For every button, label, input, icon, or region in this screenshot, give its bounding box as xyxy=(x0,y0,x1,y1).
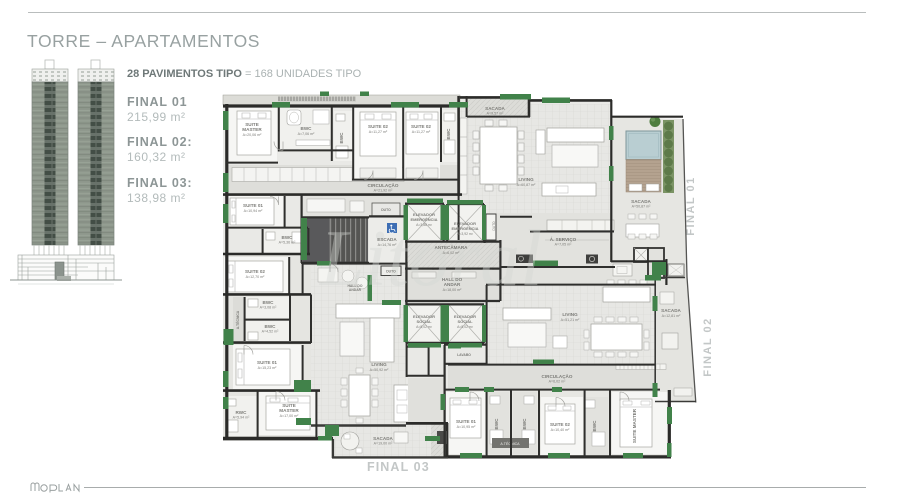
svg-text:A=5,94 m²: A=5,94 m² xyxy=(233,416,250,420)
svg-text:A=6,02 m²: A=6,02 m² xyxy=(549,380,566,384)
svg-text:A=3,08 m²: A=3,08 m² xyxy=(260,306,277,310)
svg-text:ANDAR: ANDAR xyxy=(349,288,362,292)
svg-text:A=20,06 m²: A=20,06 m² xyxy=(243,133,262,137)
svg-text:DUTO: DUTO xyxy=(381,208,391,212)
svg-text:ANDAR: ANDAR xyxy=(444,282,461,287)
svg-text:SUITE 01: SUITE 01 xyxy=(456,419,476,424)
svg-text:LAVABO: LAVABO xyxy=(457,353,471,357)
svg-text:A=3,88 m²: A=3,88 m² xyxy=(416,223,433,227)
svg-text:SOCIAL: SOCIAL xyxy=(416,319,432,324)
svg-text:LIVING: LIVING xyxy=(562,312,578,317)
svg-text:BWC: BWC xyxy=(446,128,451,140)
svg-text:CIRCULAÇÃO: CIRCULAÇÃO xyxy=(542,373,573,379)
svg-text:ANTECÂMARA: ANTECÂMARA xyxy=(435,244,469,250)
svg-text:Á. SERVIÇO: Á. SERVIÇO xyxy=(550,236,577,242)
svg-text:A.TÉCNICA: A.TÉCNICA xyxy=(235,310,240,329)
svg-text:A=6,02 m²: A=6,02 m² xyxy=(443,251,460,255)
svg-text:ESCADA: ESCADA xyxy=(377,237,397,242)
svg-text:A=17,00 m²: A=17,00 m² xyxy=(280,414,299,418)
svg-text:SUITE 01: SUITE 01 xyxy=(243,203,263,208)
svg-text:A=5,02 m²: A=5,02 m² xyxy=(457,325,474,329)
svg-text:SUITE 02: SUITE 02 xyxy=(411,124,431,129)
svg-text:A=60,87 m²: A=60,87 m² xyxy=(517,183,536,187)
svg-text:BWC: BWC xyxy=(339,132,344,144)
svg-text:A=5,36 m²: A=5,36 m² xyxy=(279,241,296,245)
svg-text:SUITE 01: SUITE 01 xyxy=(257,360,277,365)
svg-text:A=4,52 m²: A=4,52 m² xyxy=(262,330,279,334)
svg-text:A=18,00 m²: A=18,00 m² xyxy=(443,288,462,292)
svg-text:A=9,57 m²: A=9,57 m² xyxy=(487,112,504,116)
svg-text:A=50,87 m²: A=50,87 m² xyxy=(632,205,651,209)
svg-text:SACADA: SACADA xyxy=(631,199,651,204)
svg-text:A=11,27 m²: A=11,27 m² xyxy=(412,130,431,134)
svg-text:BWC: BWC xyxy=(522,418,527,430)
svg-text:A=51,21 m²: A=51,21 m² xyxy=(561,318,580,322)
svg-text:SUITE 02: SUITE 02 xyxy=(550,422,570,427)
svg-text:MASTER: MASTER xyxy=(242,127,262,132)
svg-text:SACADA: SACADA xyxy=(485,106,505,111)
svg-text:LIVING: LIVING xyxy=(518,177,534,182)
svg-text:A=19,00 m²: A=19,00 m² xyxy=(374,442,393,446)
svg-text:BWC: BWC xyxy=(265,324,277,329)
svg-text:RWC: RWC xyxy=(236,410,248,415)
svg-text:A=10,94 m²: A=10,94 m² xyxy=(244,209,263,213)
svg-text:BWC: BWC xyxy=(263,300,275,305)
svg-text:BWC: BWC xyxy=(282,235,294,240)
svg-text:BWC: BWC xyxy=(301,126,313,131)
svg-text:EMERGÊNCIA: EMERGÊNCIA xyxy=(410,217,437,222)
svg-text:A=10,40 m²: A=10,40 m² xyxy=(551,428,570,432)
svg-text:SACADA: SACADA xyxy=(661,308,681,313)
svg-text:BWC: BWC xyxy=(592,420,597,432)
svg-text:A=14,76 m²: A=14,76 m² xyxy=(378,243,397,247)
svg-text:SUITE 02: SUITE 02 xyxy=(368,124,388,129)
svg-text:SACADA: SACADA xyxy=(373,436,393,441)
svg-text:A=7,05 m²: A=7,05 m² xyxy=(555,243,572,247)
svg-text:A=11,27 m²: A=11,27 m² xyxy=(369,130,388,134)
svg-text:DUTO: DUTO xyxy=(386,270,396,274)
svg-text:BWC: BWC xyxy=(494,418,499,430)
svg-text:SOCIAL: SOCIAL xyxy=(457,319,473,324)
svg-text:A=10,95 m²: A=10,95 m² xyxy=(457,425,476,429)
svg-text:LIVING: LIVING xyxy=(371,362,387,367)
svg-text:A=50,92 m²: A=50,92 m² xyxy=(370,368,389,372)
svg-text:MASTER: MASTER xyxy=(279,408,299,413)
svg-text:A=15,23 m²: A=15,23 m² xyxy=(258,366,277,370)
svg-text:SUITE MASTER: SUITE MASTER xyxy=(632,408,637,443)
svg-text:A=3,92 m²: A=3,92 m² xyxy=(457,232,474,236)
svg-text:A=12,81 m²: A=12,81 m² xyxy=(662,314,681,318)
svg-text:A=5,02 m²: A=5,02 m² xyxy=(416,325,433,329)
svg-text:CIRCULAÇÃO: CIRCULAÇÃO xyxy=(368,182,399,188)
svg-text:SUITE 02: SUITE 02 xyxy=(245,269,265,274)
svg-text:A=21,92 m²: A=21,92 m² xyxy=(374,189,393,193)
svg-text:A=12,70 m²: A=12,70 m² xyxy=(246,275,265,279)
svg-text:EMERGÊNCIA: EMERGÊNCIA xyxy=(451,226,478,231)
svg-text:A=7,06 m²: A=7,06 m² xyxy=(298,132,315,136)
